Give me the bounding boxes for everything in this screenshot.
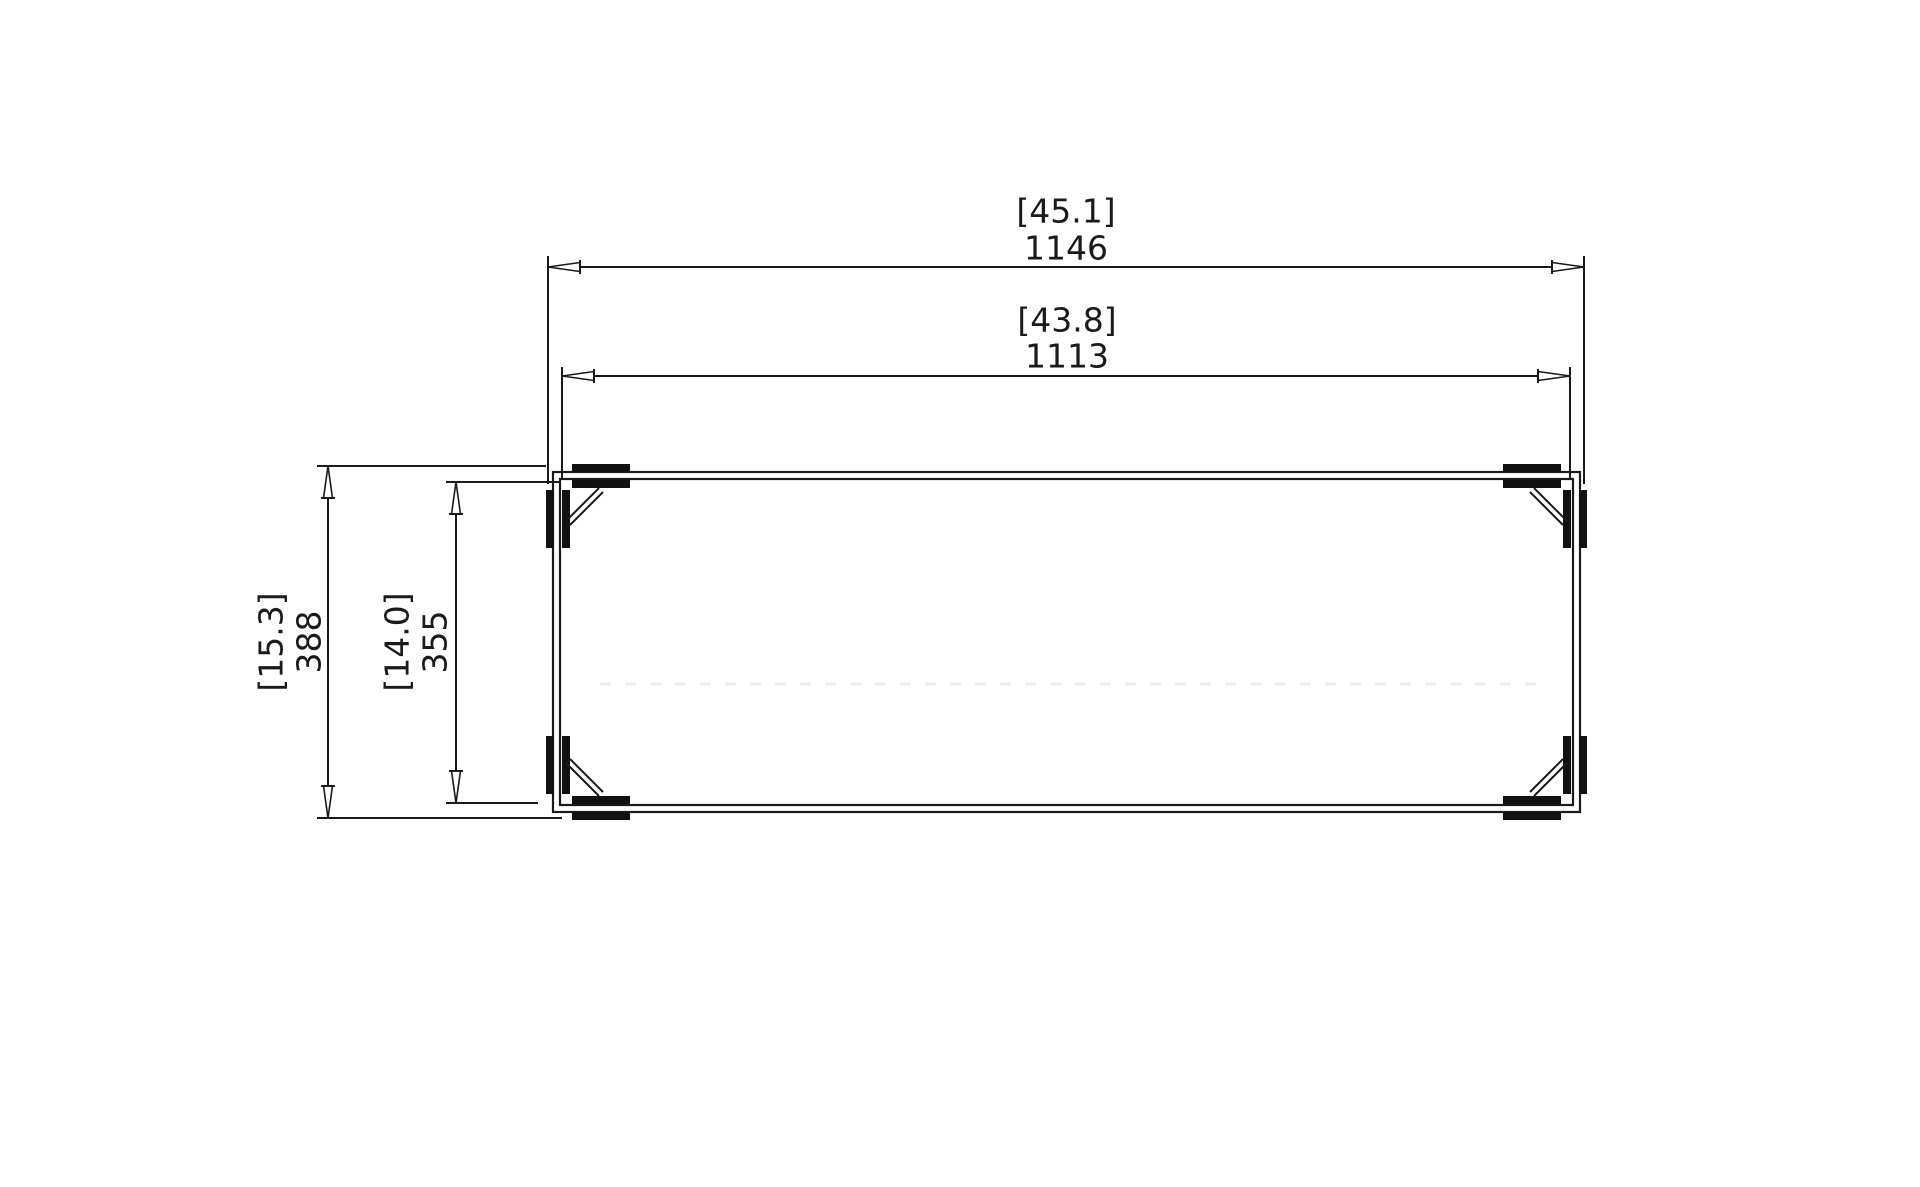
clamp-bar-side-outer <box>1579 736 1587 794</box>
arrow-left-icon <box>562 372 594 381</box>
corner-brace-line <box>1534 763 1567 796</box>
clamp-bar-bottom-outer <box>572 812 630 820</box>
arrow-up-icon <box>324 466 333 498</box>
corner-brace-line <box>566 763 599 796</box>
dim-overall-width-imperial: [45.1] <box>1016 192 1115 231</box>
dim-inner-depth: [14.0] 355 <box>378 482 561 803</box>
dim-inner-width-imperial: [43.8] <box>1017 301 1116 340</box>
arrow-right-icon <box>1538 372 1570 381</box>
corner-brace-line <box>1530 492 1563 525</box>
dim-overall-depth-metric: 388 <box>290 611 329 674</box>
arrow-down-icon <box>324 786 333 818</box>
clamp-bar-top-outer <box>572 464 630 472</box>
drawing-canvas: [45.1] 1146 [43.8] 1113 [15.3] 388 <box>0 0 1920 1187</box>
glass-inner-edge <box>560 479 1573 805</box>
corner-clamp-bottom-left <box>546 736 630 820</box>
dim-overall-depth-imperial: [15.3] <box>252 592 291 691</box>
clamp-bar-top-inner <box>1503 480 1561 488</box>
clamp-bar-bottom-outer <box>1503 812 1561 820</box>
dim-inner-width: [43.8] 1113 <box>562 301 1570 480</box>
clamp-bar-side-outer <box>1579 490 1587 548</box>
corner-clamp-bottom-right <box>1503 736 1587 820</box>
dim-inner-depth-metric: 355 <box>416 611 455 674</box>
clamp-bar-side-outer <box>546 490 554 548</box>
corner-clamp-top-right <box>1503 464 1587 548</box>
product-outline <box>553 472 1580 812</box>
dim-inner-depth-imperial: [14.0] <box>378 592 417 691</box>
corner-brace-line <box>1534 488 1567 521</box>
clamp-bar-bottom-inner <box>572 796 630 804</box>
dim-inner-width-metric: 1113 <box>1025 337 1109 376</box>
arrow-left-icon <box>548 263 580 272</box>
arrow-up-icon <box>452 482 461 514</box>
clamp-bar-top-inner <box>572 480 630 488</box>
clamp-bar-bottom-inner <box>1503 796 1561 804</box>
corner-brace-line <box>570 759 603 792</box>
arrow-right-icon <box>1552 263 1584 272</box>
corner-brace-line <box>1530 759 1563 792</box>
plan-view-technical-drawing: [45.1] 1146 [43.8] 1113 [15.3] 388 <box>0 0 1920 1187</box>
glass-outer-edge <box>553 472 1580 812</box>
arrow-down-icon <box>452 771 461 803</box>
corner-clamp-top-left <box>546 464 630 548</box>
dim-overall-width-metric: 1146 <box>1024 229 1108 268</box>
corner-brace-line <box>566 488 599 521</box>
clamp-bar-top-outer <box>1503 464 1561 472</box>
corner-brace-line <box>570 492 603 525</box>
clamp-bar-side-outer <box>546 736 554 794</box>
